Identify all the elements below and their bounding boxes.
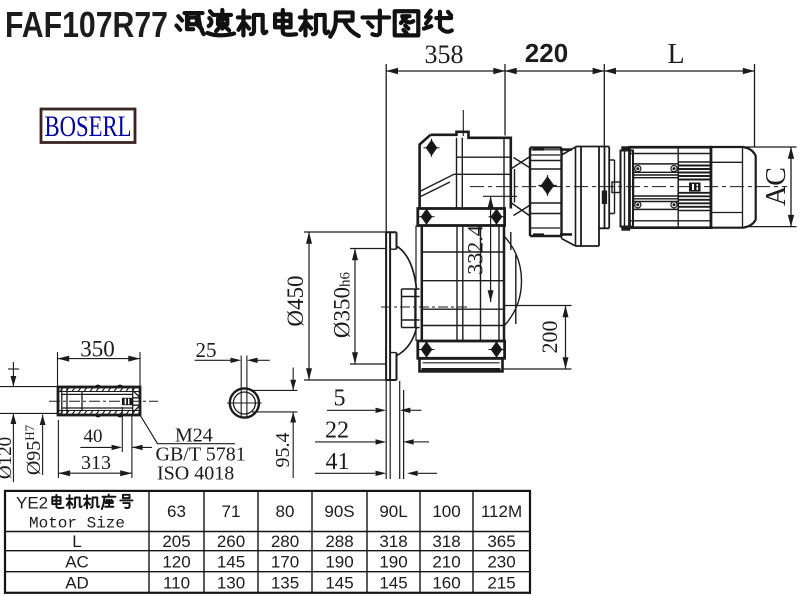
svg-text:41: 41 bbox=[326, 449, 350, 475]
svg-text:365: 365 bbox=[487, 532, 515, 551]
svg-text:145: 145 bbox=[379, 574, 407, 593]
svg-text:110: 110 bbox=[163, 574, 190, 593]
svg-text:200: 200 bbox=[537, 321, 562, 354]
svg-text:332.4: 332.4 bbox=[463, 225, 488, 275]
svg-text:95.4: 95.4 bbox=[272, 433, 294, 468]
svg-text:25: 25 bbox=[196, 338, 217, 362]
svg-text:90S: 90S bbox=[324, 502, 354, 521]
svg-text:80: 80 bbox=[276, 502, 295, 521]
svg-text:ISO 4018: ISO 4018 bbox=[157, 463, 234, 485]
svg-text:135: 135 bbox=[271, 574, 299, 593]
svg-text:280: 280 bbox=[271, 532, 299, 551]
svg-text:220: 220 bbox=[525, 38, 568, 68]
svg-text:190: 190 bbox=[325, 553, 353, 572]
svg-text:90L: 90L bbox=[379, 502, 407, 521]
svg-text:L: L bbox=[667, 39, 684, 70]
svg-text:FAF107R77: FAF107R77 bbox=[5, 4, 168, 45]
svg-text:22: 22 bbox=[325, 418, 349, 444]
svg-text:350: 350 bbox=[80, 337, 115, 362]
svg-text:71: 71 bbox=[222, 502, 241, 521]
svg-text:170: 170 bbox=[271, 553, 299, 572]
svg-text:145: 145 bbox=[217, 553, 245, 572]
svg-text:230: 230 bbox=[487, 553, 515, 572]
svg-text:260: 260 bbox=[217, 532, 245, 551]
svg-text:63: 63 bbox=[167, 502, 186, 521]
svg-text:40: 40 bbox=[84, 426, 103, 447]
svg-text:130: 130 bbox=[217, 574, 245, 593]
svg-text:358: 358 bbox=[425, 40, 464, 69]
svg-text:5: 5 bbox=[334, 386, 346, 412]
svg-text:215: 215 bbox=[487, 574, 515, 593]
svg-text:100: 100 bbox=[432, 502, 460, 521]
svg-text:318: 318 bbox=[379, 532, 407, 551]
svg-text:L: L bbox=[72, 532, 81, 551]
svg-text:BOSERL: BOSERL bbox=[45, 110, 132, 143]
svg-text:Ø450: Ø450 bbox=[283, 275, 308, 326]
svg-text:160: 160 bbox=[432, 574, 460, 593]
svg-text:288: 288 bbox=[325, 532, 353, 551]
svg-text:Ø120: Ø120 bbox=[0, 437, 16, 479]
svg-text:190: 190 bbox=[379, 553, 407, 572]
svg-text:AC: AC bbox=[65, 553, 89, 572]
svg-text:112M: 112M bbox=[481, 502, 522, 521]
svg-text:YE2: YE2 bbox=[16, 494, 48, 513]
svg-text:Motor Size: Motor Size bbox=[29, 515, 125, 533]
svg-text:318: 318 bbox=[432, 532, 460, 551]
svg-text:313: 313 bbox=[81, 452, 111, 474]
svg-text:120: 120 bbox=[162, 553, 190, 572]
svg-text:210: 210 bbox=[432, 553, 460, 572]
svg-text:145: 145 bbox=[325, 574, 353, 593]
svg-text:AD: AD bbox=[65, 574, 89, 593]
svg-text:205: 205 bbox=[162, 532, 190, 551]
